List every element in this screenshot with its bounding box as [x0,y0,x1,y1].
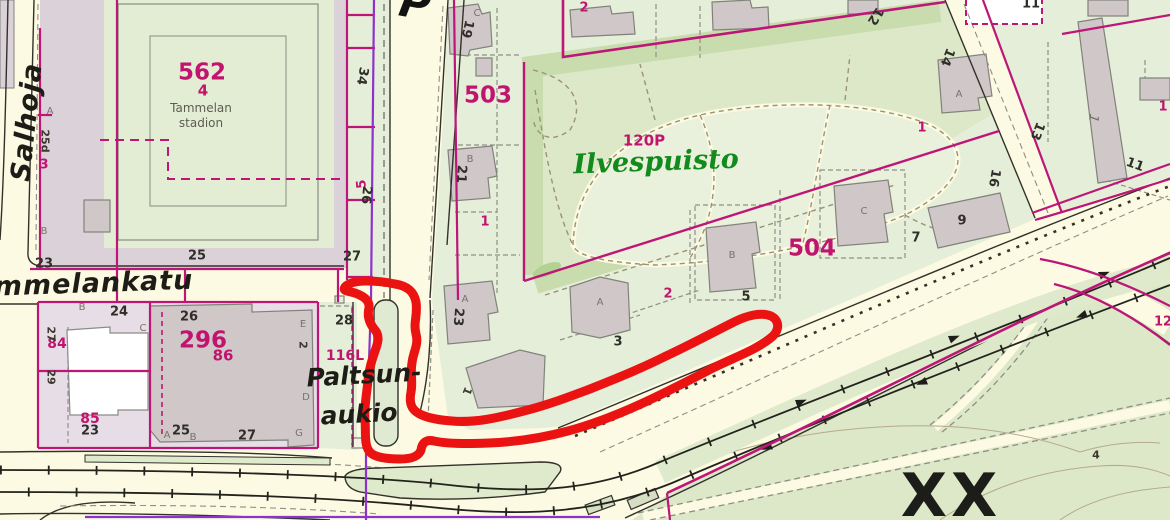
building-23 [444,281,498,344]
building-c-504 [834,180,893,246]
building-a-center [570,277,630,338]
map-viewport: SalhojaammelankatuPPaltsun-aukioIlvespui… [0,0,1170,520]
white-parcel [966,0,1042,24]
building-b-504 [706,222,760,292]
map-canvas [0,0,1170,520]
building-296 [150,304,314,447]
stadium-field [104,0,334,248]
